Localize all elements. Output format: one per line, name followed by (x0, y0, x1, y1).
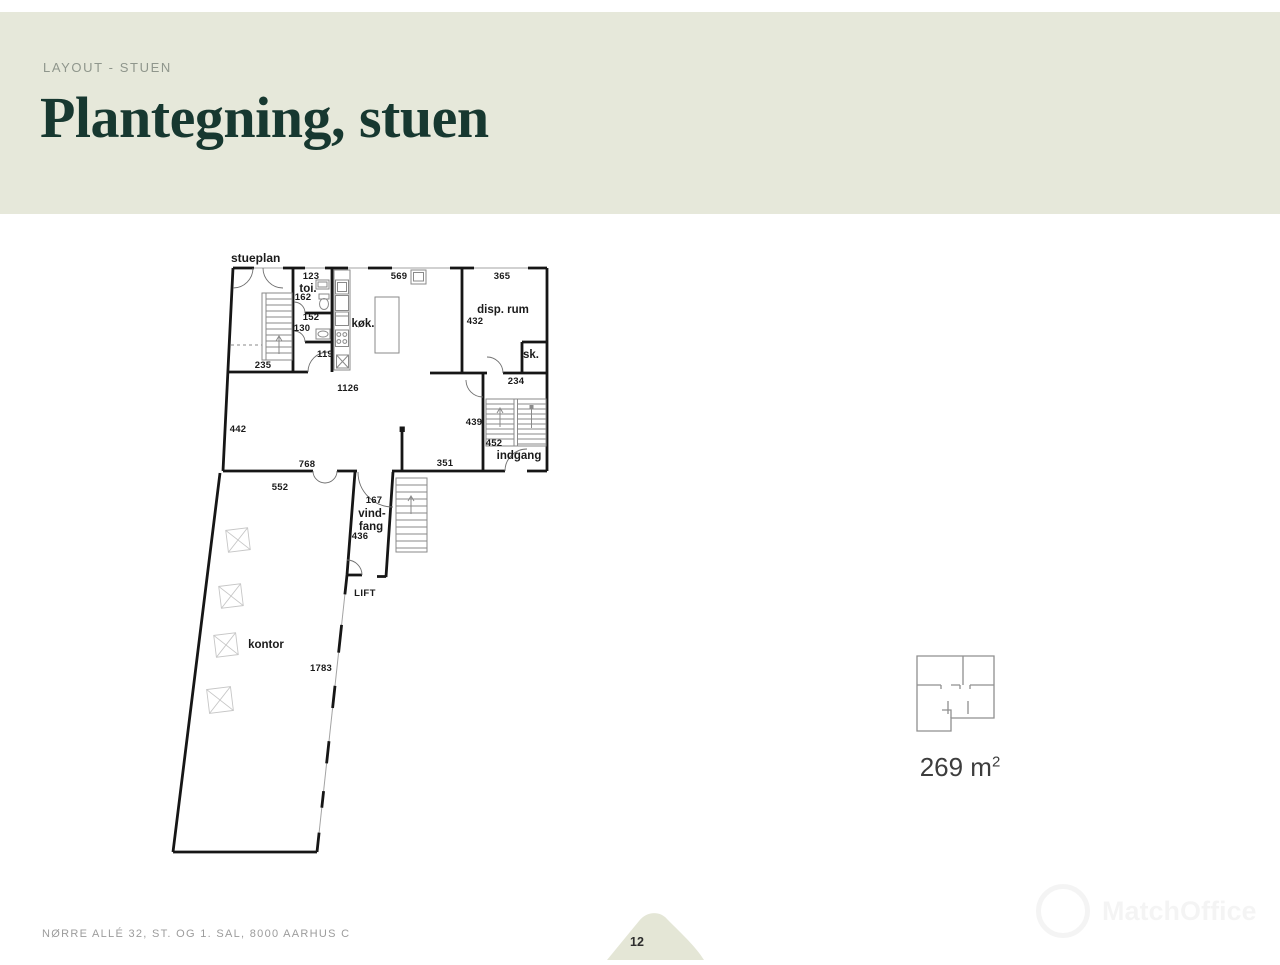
walls (173, 268, 547, 852)
area-value: 269 m2 (885, 752, 1035, 783)
area-number: 269 m (920, 752, 992, 782)
plan-labels: stueplan 123 toi. 162 152 130 119 235 kø… (230, 251, 542, 674)
label-351: 351 (437, 458, 454, 469)
label-indgang: indgang (497, 450, 542, 462)
page-number-badge: 12 (595, 910, 710, 960)
label-235: 235 (255, 360, 272, 371)
label-kok: køk. (351, 318, 374, 330)
label-569: 569 (391, 271, 407, 282)
label-130: 130 (294, 323, 310, 334)
watermark-text: MatchOffice (1102, 896, 1257, 927)
label-365: 365 (494, 271, 511, 282)
label-452: 452 (486, 438, 502, 449)
staircase-vindfang (396, 478, 427, 552)
label-432: 432 (467, 316, 483, 327)
area-sup: 2 (992, 753, 1000, 770)
label-234: 234 (508, 376, 525, 387)
label-123: 123 (303, 271, 319, 282)
label-119: 119 (317, 349, 333, 360)
watermark: MatchOffice (1036, 884, 1257, 938)
staircase-topleft (231, 293, 292, 360)
label-442: 442 (230, 424, 246, 435)
label-439: 439 (466, 417, 482, 428)
label-kontor: kontor (248, 639, 284, 651)
footprint-icon (900, 645, 1015, 740)
columns (207, 528, 251, 714)
label-167: 167 (366, 495, 382, 506)
window-lines (233, 268, 547, 852)
label-1126: 1126 (337, 383, 358, 394)
label-vind: vind- (358, 508, 386, 520)
leaf-shape (607, 913, 704, 960)
label-disp-rum: disp. rum (477, 304, 529, 316)
label-768: 768 (299, 459, 315, 470)
plan-title: stueplan (231, 251, 280, 265)
header-eyebrow: LAYOUT - STUEN (43, 60, 172, 75)
label-1783: 1783 (310, 663, 332, 674)
watermark-logo-icon (1036, 884, 1090, 938)
page-title: Plantegning, stuen (40, 84, 489, 151)
page-number: 12 (630, 935, 644, 949)
kitchen-fixtures (334, 270, 426, 370)
footer-address: NØRRE ALLÉ 32, ST. OG 1. SAL, 8000 AARHU… (42, 928, 350, 940)
label-436: 436 (352, 531, 368, 542)
floor-plan: stueplan 123 toi. 162 152 130 119 235 kø… (165, 240, 565, 865)
label-552: 552 (272, 482, 288, 493)
label-lift: LIFT (354, 588, 376, 599)
label-sk: sk. (523, 349, 539, 361)
label-162: 162 (295, 292, 311, 303)
label-152: 152 (303, 312, 319, 323)
bathroom-fixtures (316, 280, 330, 339)
